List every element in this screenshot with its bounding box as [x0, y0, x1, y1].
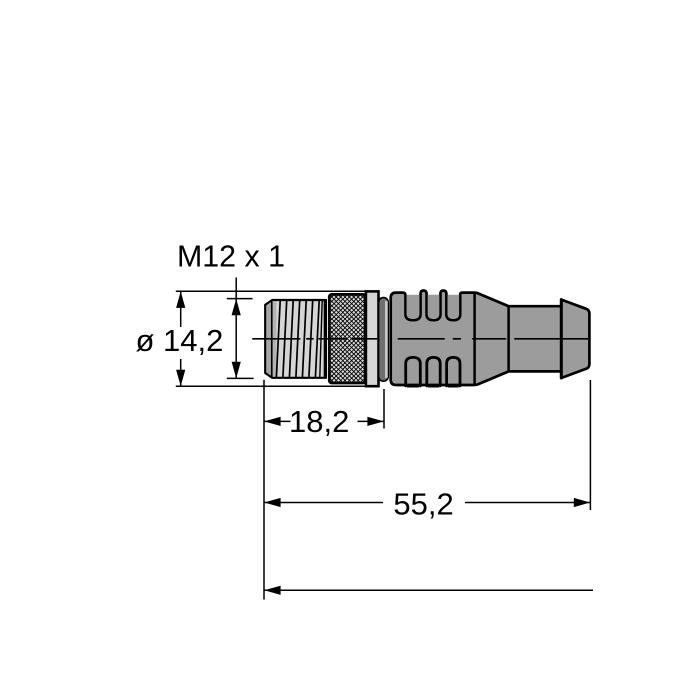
svg-text:55,2: 55,2 [393, 486, 453, 521]
svg-text:18,2: 18,2 [289, 404, 349, 439]
svg-text:M12 x 1: M12 x 1 [177, 239, 285, 274]
svg-text:ø 14,2: ø 14,2 [136, 323, 224, 358]
